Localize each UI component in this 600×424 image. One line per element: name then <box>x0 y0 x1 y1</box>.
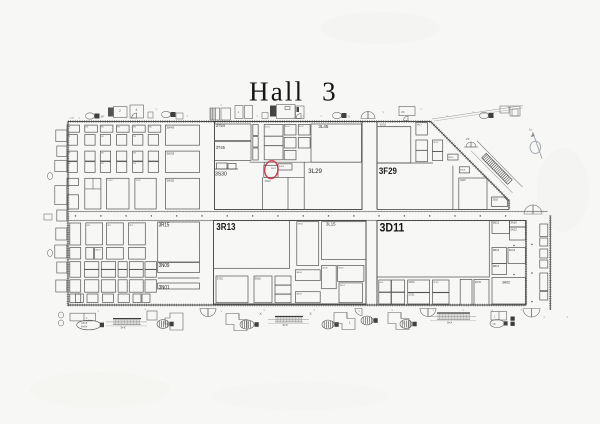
svg-text:3D11: 3D11 <box>380 222 405 234</box>
svg-text:2: 2 <box>119 109 121 113</box>
svg-text:3T26: 3T26 <box>136 180 142 182</box>
svg-text:3T20: 3T20 <box>265 126 271 128</box>
svg-text:3E08: 3E08 <box>460 170 466 172</box>
svg-text:3602: 3602 <box>255 276 262 280</box>
svg-text:3S09: 3S09 <box>279 166 285 168</box>
svg-text:3A22: 3A22 <box>510 228 517 232</box>
svg-text:3Χ*: 3Χ* <box>101 116 105 119</box>
svg-text:3L54: 3L54 <box>285 126 291 128</box>
svg-text:Hall 3: Hall 3 <box>249 77 338 107</box>
svg-text:3E16: 3E16 <box>448 157 454 159</box>
svg-text:3×Χ: 3×Χ <box>447 321 452 325</box>
svg-text:3M04: 3M04 <box>296 272 302 274</box>
svg-text:3W: 3W <box>133 127 136 129</box>
svg-text:4: 4 <box>136 108 138 112</box>
svg-text:3U19: 3U19 <box>95 250 101 252</box>
svg-text:3R13: 3R13 <box>216 222 236 233</box>
svg-text:3702: 3702 <box>217 276 224 280</box>
svg-text:3W43: 3W43 <box>166 126 174 130</box>
svg-text:1-100: 1-100 <box>69 118 75 120</box>
svg-text:3A12: 3A12 <box>509 248 516 252</box>
svg-text:3W: 3W <box>85 127 88 129</box>
svg-text:3A20: 3A20 <box>510 221 517 225</box>
svg-text:3Χ: 3Χ <box>401 110 405 114</box>
svg-text:×Χ: ×Χ <box>493 323 496 326</box>
svg-text:3W: 3W <box>101 127 104 129</box>
svg-text:3W: 3W <box>101 163 104 165</box>
svg-text:3W: 3W <box>133 163 136 165</box>
svg-text:N: N <box>529 128 532 132</box>
svg-text:3A02: 3A02 <box>502 280 510 284</box>
svg-text:3L29: 3L29 <box>308 168 322 175</box>
svg-text:3W: 3W <box>149 127 152 129</box>
svg-text:3×Χ: 3×Χ <box>121 326 126 330</box>
svg-text:3E05: 3E05 <box>460 179 466 182</box>
svg-text:3B14: 3B14 <box>493 264 500 268</box>
svg-text:3W: 3W <box>117 127 120 129</box>
svg-text:3T30: 3T30 <box>107 180 113 182</box>
svg-text:3L52: 3L52 <box>299 126 305 128</box>
svg-text:3D05: 3D05 <box>475 280 482 284</box>
svg-text:3W: 3W <box>68 127 71 129</box>
svg-text:3S30: 3S30 <box>215 172 227 178</box>
svg-text:3W: 3W <box>133 153 136 155</box>
svg-text:3F29: 3F29 <box>379 166 397 176</box>
svg-text:2Χ: 2Χ <box>466 137 470 141</box>
svg-text:3K01: 3K01 <box>340 285 346 287</box>
svg-text:3W: 3W <box>68 163 71 165</box>
svg-text:3K07: 3K07 <box>338 267 344 269</box>
svg-text:3L45: 3L45 <box>318 124 329 129</box>
svg-text:3B22: 3B22 <box>493 221 500 225</box>
svg-text:3R15: 3R15 <box>159 223 170 229</box>
svg-text:3B14: 3B14 <box>493 248 500 252</box>
svg-text:3W33: 3W33 <box>166 152 174 156</box>
svg-text:3N01: 3N01 <box>159 285 170 291</box>
svg-text:3W: 3W <box>68 153 71 155</box>
svg-text:3L15: 3L15 <box>326 222 336 227</box>
svg-text:3T45: 3T45 <box>216 145 226 150</box>
svg-text:3×Χ: 3×Χ <box>283 323 288 327</box>
svg-text:3T54: 3T54 <box>216 123 226 128</box>
svg-text:3W: 3W <box>101 136 104 138</box>
svg-text:3W: 3W <box>101 153 104 155</box>
svg-text:3W25: 3W25 <box>166 179 174 183</box>
svg-text:3D02: 3D02 <box>408 280 415 284</box>
svg-text:3C01: 3C01 <box>408 293 415 297</box>
svg-text:3N09: 3N09 <box>159 263 170 269</box>
svg-text:3G02: 3G02 <box>380 122 387 126</box>
svg-text:3K09: 3K09 <box>322 267 328 269</box>
svg-text:3C05: 3C05 <box>433 282 439 284</box>
svg-text:*Χ: *Χ <box>348 116 351 119</box>
svg-text:3M02: 3M02 <box>296 294 302 296</box>
svg-text:3W: 3W <box>133 136 136 138</box>
svg-text:3M12: 3M12 <box>298 224 304 226</box>
svg-text:3S00: 3S00 <box>265 179 272 183</box>
svg-text:3S07: 3S07 <box>271 168 277 170</box>
svg-text:3W: 3W <box>68 136 71 138</box>
svg-text:3E00: 3E00 <box>492 198 498 201</box>
svg-text:3F14: 3F14 <box>417 125 423 127</box>
svg-text:3F10: 3F10 <box>433 142 439 144</box>
svg-text:Χ×Χ×: Χ×Χ× <box>81 326 88 329</box>
